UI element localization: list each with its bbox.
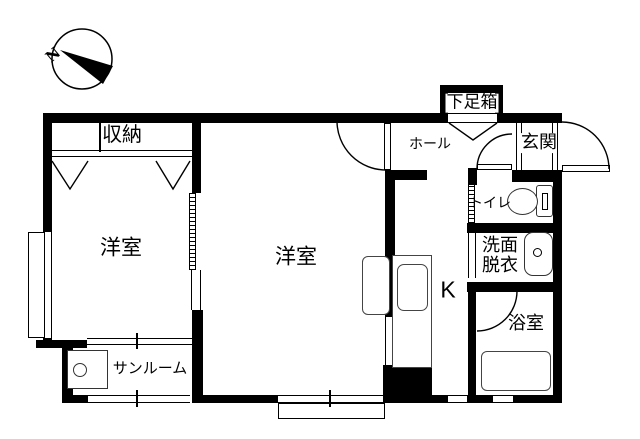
divider-opening: [191, 270, 201, 310]
bedroom-left-label: 洋室: [100, 236, 142, 259]
left-window-frame: [28, 232, 45, 338]
sunroom-label: サンルーム: [113, 361, 188, 378]
sunroom-top-window: [87, 338, 192, 345]
kitchen-counter-icon: [392, 255, 432, 368]
wall-bottom-bath-left: [467, 395, 493, 403]
wall-hall-bottom-left: [385, 170, 427, 180]
closet-front-line: [52, 150, 192, 157]
washroom-label-line1: 洗面: [482, 236, 518, 256]
toilet-door-leaf: [477, 164, 512, 170]
toilet-tank-icon: [536, 185, 553, 217]
washroom-label: 洗面 脱衣: [482, 236, 518, 276]
midroom-window-tick: [329, 390, 331, 407]
bedroom-center-label: 洋室: [275, 245, 317, 268]
shoebox-door-fold-mark: [449, 123, 497, 140]
refrigerator-icon: [362, 256, 390, 315]
kitchen-label: K: [440, 277, 455, 302]
sunroom-bottom-window-tick: [136, 390, 138, 407]
entrance-door-arc: [562, 122, 609, 169]
wall-sanitary-left: [468, 292, 476, 395]
bathroom-label: 浴室: [508, 314, 544, 334]
wall-bottom-sunroom: [62, 395, 88, 403]
washroom-label-line2: 脱衣: [482, 256, 518, 276]
washbasin-icon: [524, 232, 553, 276]
shoebox-label: 下足箱: [446, 94, 499, 113]
toilet-bowl-icon: [507, 188, 538, 215]
midroom-door-leaf: [384, 123, 391, 170]
entrance-door-leaf: [562, 165, 610, 172]
bathtub-icon: [481, 351, 551, 391]
wall-left: [43, 113, 52, 232]
hall-label: ホール: [409, 136, 451, 151]
wall-bottom-k: [430, 395, 448, 403]
washing-machine-icon: [67, 350, 108, 389]
closet-door-fold-mark-left: [52, 161, 88, 189]
wall-right: [553, 172, 562, 395]
midroom-door-arc: [337, 121, 386, 170]
compass-north-label: N: [42, 43, 64, 66]
wall-top-right: [497, 113, 562, 123]
wall-kitchen-chunk: [383, 365, 432, 403]
wall-washroom-bottom: [467, 282, 562, 292]
wall-bottom-room: [196, 395, 278, 403]
left-window: [44, 232, 52, 338]
wall-top-left: [43, 113, 448, 123]
wall-divider-bottom: [192, 310, 203, 403]
entrance-label: 玄関: [521, 133, 557, 153]
shoebox-opening: [448, 113, 497, 123]
sunroom-top-window-tick: [136, 333, 138, 349]
wall-hall-nub: [468, 168, 477, 185]
toilet-tank-slot-icon: [542, 193, 548, 210]
wall-bottom-bath-right: [513, 395, 562, 403]
wall-divider-top: [192, 113, 201, 193]
midroom-window-outer-frame: [278, 403, 385, 419]
washing-machine-dial-icon: [73, 363, 87, 377]
compass-icon: N: [42, 29, 113, 89]
closet-divider-line: [99, 123, 101, 152]
wall-toilet-bottom: [467, 223, 562, 233]
floor-plan: N 収納 洋室 洋室 サンルーム ホール 下足箱 玄関 トイレ 洗面 脱衣 浴室…: [0, 0, 640, 439]
toilet-label: トイレ: [469, 195, 511, 210]
washroom-opening: [468, 233, 476, 278]
bathroom-bottom-window: [493, 395, 513, 403]
closet-door-fold-mark-right: [156, 161, 190, 189]
kitchen-sink-icon: [397, 264, 428, 311]
kitchen-bottom-window: [448, 395, 467, 403]
divider-hatch-strip: [189, 193, 196, 270]
sunroom-bottom-window: [88, 395, 190, 403]
closet-label: 収納: [102, 124, 142, 146]
washbasin-faucet-icon: [533, 248, 542, 257]
